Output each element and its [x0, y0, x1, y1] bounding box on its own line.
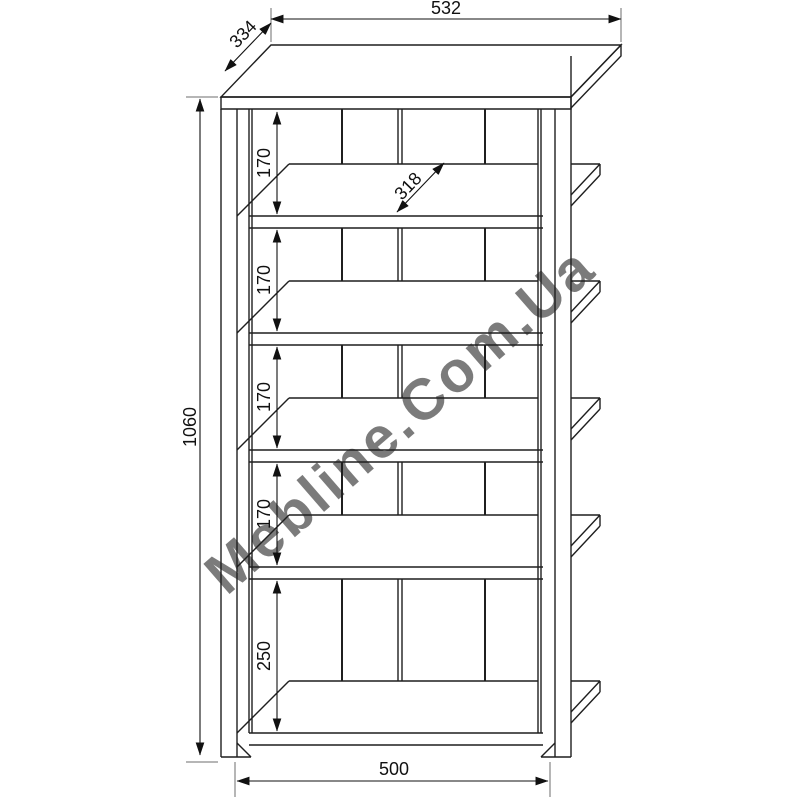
dimension-bottom-width: 500	[237, 759, 548, 781]
dimension-gap-1: 170	[254, 112, 277, 214]
dimension-depth: 334	[225, 16, 271, 71]
height-label: 1060	[180, 407, 200, 447]
bottom-shelf	[237, 681, 600, 745]
dimension-height: 1060	[180, 99, 200, 755]
top-width-label: 532	[431, 0, 461, 18]
dimension-gap-2: 170	[254, 230, 277, 331]
gap-2-label: 170	[254, 265, 274, 295]
shelving-unit-drawing: Mebline.Com.Ua	[0, 0, 800, 800]
dimension-shelf-depth: 318	[390, 163, 444, 212]
gap-3-label: 170	[254, 382, 274, 412]
right-side-panel	[538, 56, 571, 757]
bottom-width-label: 500	[379, 759, 409, 779]
gap-4-label: 170	[254, 499, 274, 529]
top-board	[221, 45, 621, 109]
shelf-depth-label: 318	[390, 168, 425, 204]
gap-bottom-label: 250	[254, 641, 274, 671]
dimension-top-width: 532	[271, 0, 621, 19]
dimension-gap-bottom: 250	[254, 581, 277, 731]
dimension-gap-3: 170	[254, 347, 277, 448]
gap-1-label: 170	[254, 148, 274, 178]
technical-drawing-page: Mebline.Com.Ua	[0, 0, 800, 800]
depth-label: 334	[225, 16, 260, 52]
shelf-1	[237, 164, 600, 228]
